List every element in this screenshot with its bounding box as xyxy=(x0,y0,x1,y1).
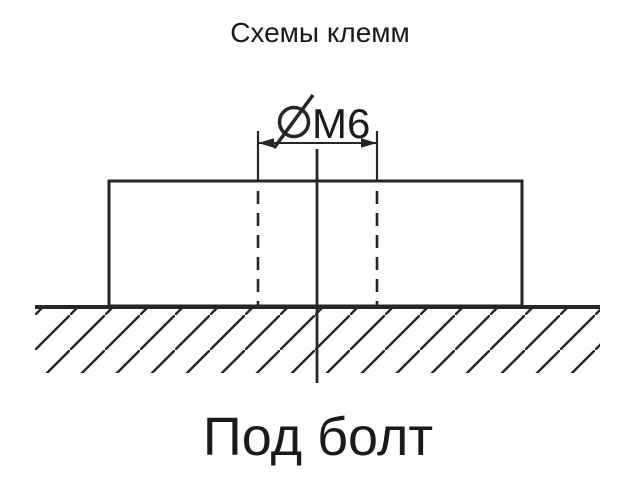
ground-hatch-area xyxy=(35,308,600,373)
block-outline xyxy=(109,181,522,306)
caption: Под болт xyxy=(203,407,433,467)
dimension-arrow-left xyxy=(258,138,274,148)
diameter-symbol-icon xyxy=(274,95,313,148)
page-title: Схемы клемм xyxy=(230,17,410,48)
terminal-scheme-page: Схемы клемм M6 Под болт xyxy=(0,0,640,480)
terminal-diagram: Схемы клемм M6 Под болт xyxy=(0,0,640,480)
